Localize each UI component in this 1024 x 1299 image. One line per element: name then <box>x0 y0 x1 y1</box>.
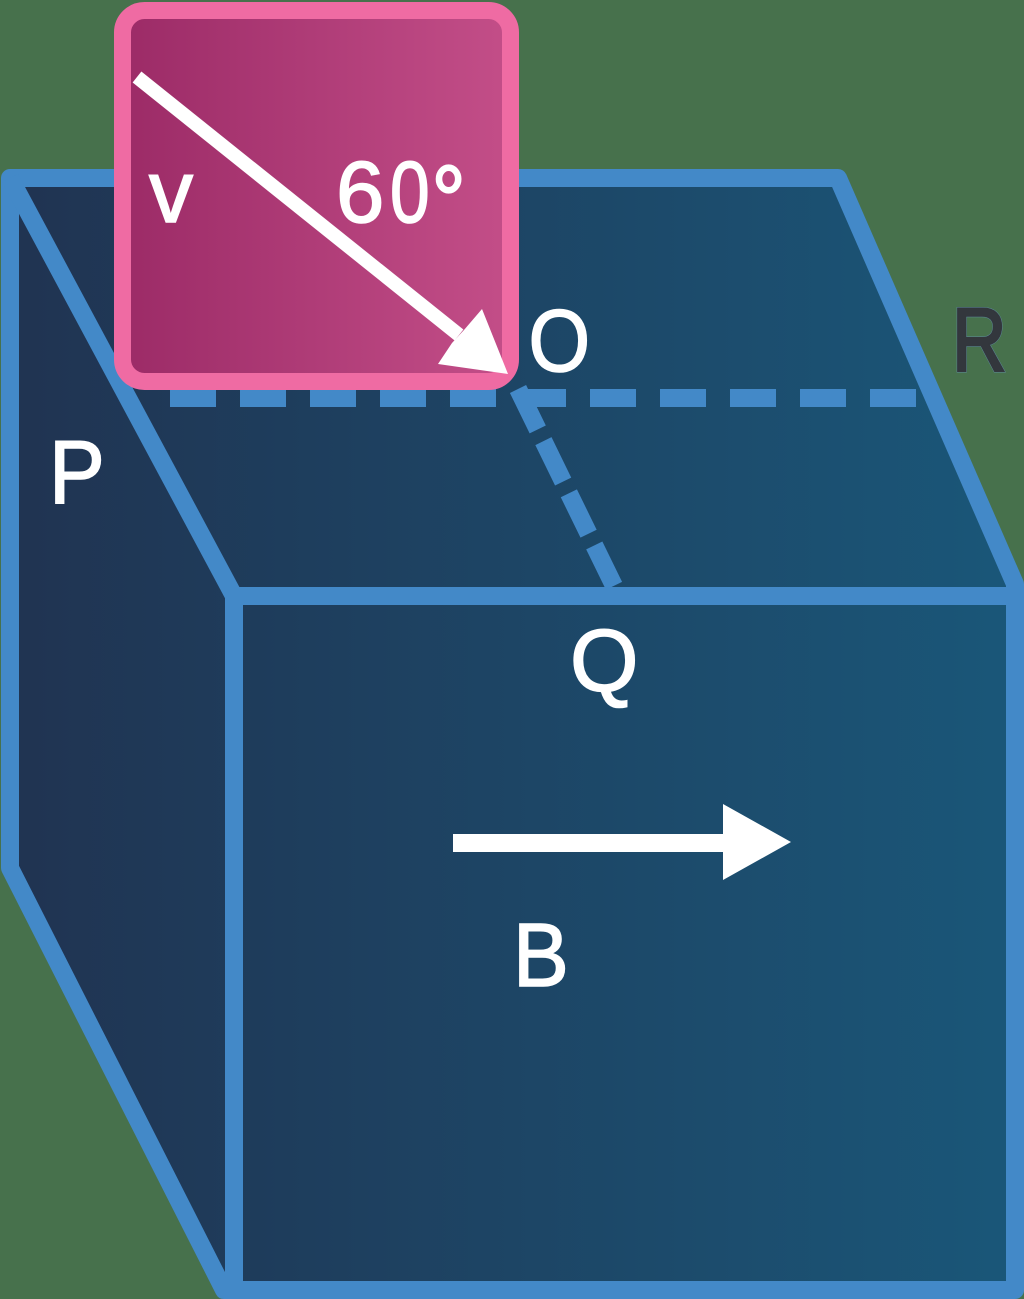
svg-text:v: v <box>149 142 193 241</box>
svg-text:O: O <box>529 291 591 390</box>
svg-text:B: B <box>513 905 569 1005</box>
svg-text:6: 6 <box>336 144 384 241</box>
svg-text:0: 0 <box>390 143 430 240</box>
svg-text:R: R <box>952 290 1007 391</box>
svg-text:Q: Q <box>570 611 638 710</box>
svg-text:P: P <box>49 422 105 522</box>
